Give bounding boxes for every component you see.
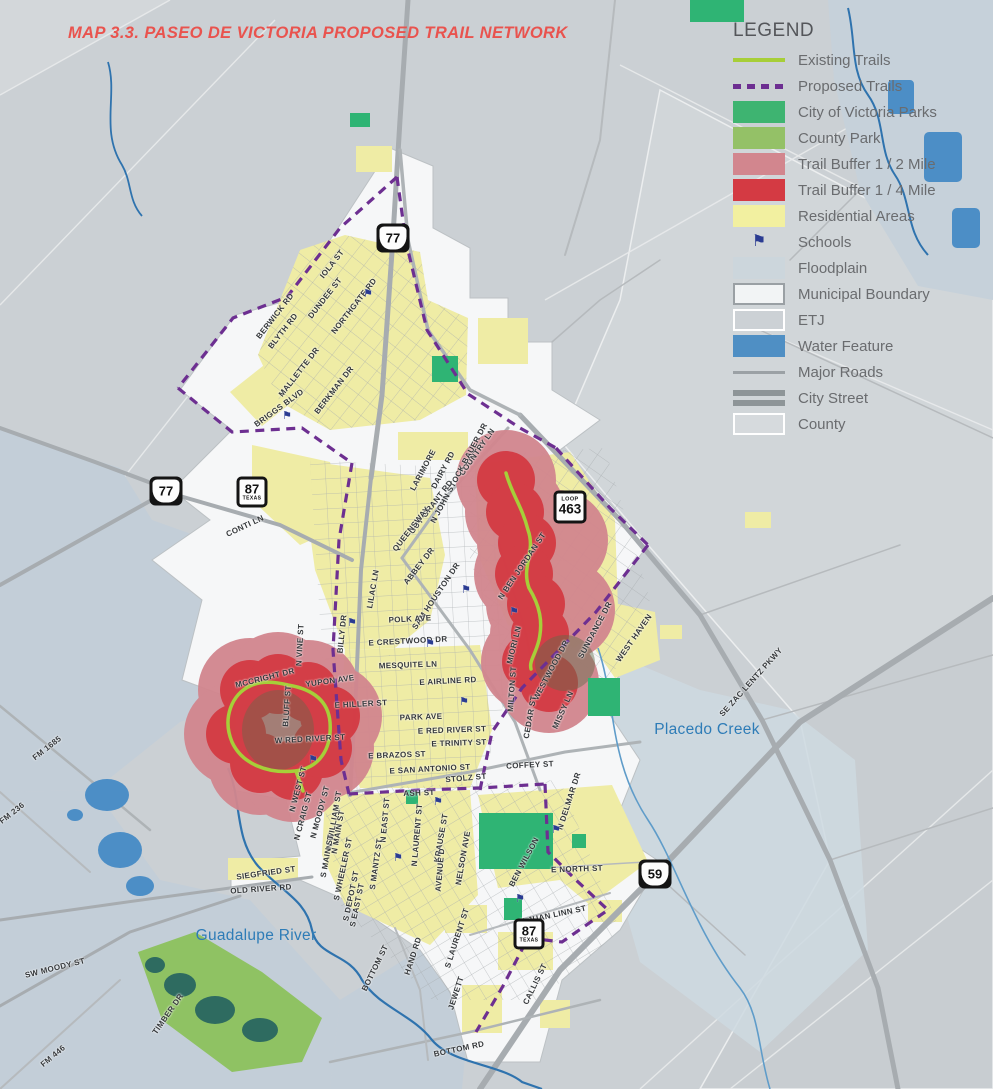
legend-swatch bbox=[733, 101, 785, 123]
legend-swatch bbox=[733, 361, 785, 383]
legend-item-label: Trail Buffer 1 / 4 Mile bbox=[798, 182, 936, 199]
legend-swatch bbox=[733, 153, 785, 175]
shield-number: 87 bbox=[245, 482, 259, 496]
legend-item-label: ETJ bbox=[798, 312, 825, 329]
legend-item-label: Municipal Boundary bbox=[798, 286, 930, 303]
legend-item-label: Existing Trails bbox=[798, 52, 891, 69]
legend-item-label: Floodplain bbox=[798, 260, 867, 277]
legend-item-label: Residential Areas bbox=[798, 208, 915, 225]
shield-number: 463 bbox=[559, 503, 582, 517]
map-title: MAP 3.3. PASEO DE VICTORIA PROPOSED TRAI… bbox=[68, 24, 568, 43]
legend-swatch bbox=[733, 283, 785, 305]
legend-item: City of Victoria Parks bbox=[733, 101, 985, 123]
state-highway-shield: 87 TEXAS bbox=[237, 477, 268, 508]
legend-item-label: County bbox=[798, 416, 846, 433]
legend-item-label: City Street bbox=[798, 390, 868, 407]
legend-swatch bbox=[733, 387, 785, 409]
shield-number: 77 bbox=[159, 484, 173, 499]
legend-item: Major Roads bbox=[733, 361, 985, 383]
legend-swatch bbox=[733, 335, 785, 357]
legend-item: County bbox=[733, 413, 985, 435]
shield-subtext: TEXAS bbox=[243, 496, 262, 502]
loop-highway-shield: LOOP 463 bbox=[554, 491, 587, 524]
shield-subtext: TEXAS bbox=[520, 938, 539, 944]
legend-swatch: ⚑ bbox=[733, 231, 785, 253]
shield-badge: 77 bbox=[380, 227, 407, 250]
legend-item-label: Trail Buffer 1 / 2 Mile bbox=[798, 156, 936, 173]
shield-number: 77 bbox=[386, 231, 400, 246]
legend-swatch bbox=[733, 49, 785, 71]
legend-swatch bbox=[733, 257, 785, 279]
legend-item: ETJ bbox=[733, 309, 985, 331]
shield-number: 87 bbox=[522, 924, 536, 938]
legend-items: Existing Trails Proposed Trails City of … bbox=[733, 49, 985, 435]
map-page: IOLA STDUNDEE STNORTHGATE RDBERWICK RDBL… bbox=[0, 0, 993, 1089]
legend-item: Trail Buffer 1 / 2 Mile bbox=[733, 153, 985, 175]
legend-swatch bbox=[733, 179, 785, 201]
legend-item-label: Water Feature bbox=[798, 338, 893, 355]
legend-item: County Park bbox=[733, 127, 985, 149]
legend-item-label: City of Victoria Parks bbox=[798, 104, 937, 121]
legend-item: Existing Trails bbox=[733, 49, 985, 71]
shield-number: 59 bbox=[648, 867, 662, 882]
legend-item: Residential Areas bbox=[733, 205, 985, 227]
legend-item-label: Proposed Trails bbox=[798, 78, 902, 95]
legend-item-label: Major Roads bbox=[798, 364, 883, 381]
legend-item: ⚑ Schools bbox=[733, 231, 985, 253]
legend-swatch bbox=[733, 75, 785, 97]
legend: LEGEND Existing Trails Proposed Trails C… bbox=[733, 20, 985, 439]
legend-swatch bbox=[733, 309, 785, 331]
legend-title: LEGEND bbox=[733, 20, 985, 42]
legend-item: City Street bbox=[733, 387, 985, 409]
state-highway-shield: 87 TEXAS bbox=[514, 919, 545, 950]
legend-swatch bbox=[733, 205, 785, 227]
us-highway-shield: 77 bbox=[150, 477, 183, 506]
legend-item: Proposed Trails bbox=[733, 75, 985, 97]
legend-item: Water Feature bbox=[733, 335, 985, 357]
legend-item-label: County Park bbox=[798, 130, 881, 147]
legend-item: Floodplain bbox=[733, 257, 985, 279]
shield-badge: 77 bbox=[153, 480, 180, 503]
legend-item: Trail Buffer 1 / 4 Mile bbox=[733, 179, 985, 201]
us-highway-shield: 59 bbox=[639, 860, 672, 889]
legend-swatch bbox=[733, 413, 785, 435]
shield-badge: 59 bbox=[642, 863, 669, 886]
legend-item: Municipal Boundary bbox=[733, 283, 985, 305]
legend-item-label: Schools bbox=[798, 234, 851, 251]
legend-swatch bbox=[733, 127, 785, 149]
us-highway-shield: 77 bbox=[377, 224, 410, 253]
